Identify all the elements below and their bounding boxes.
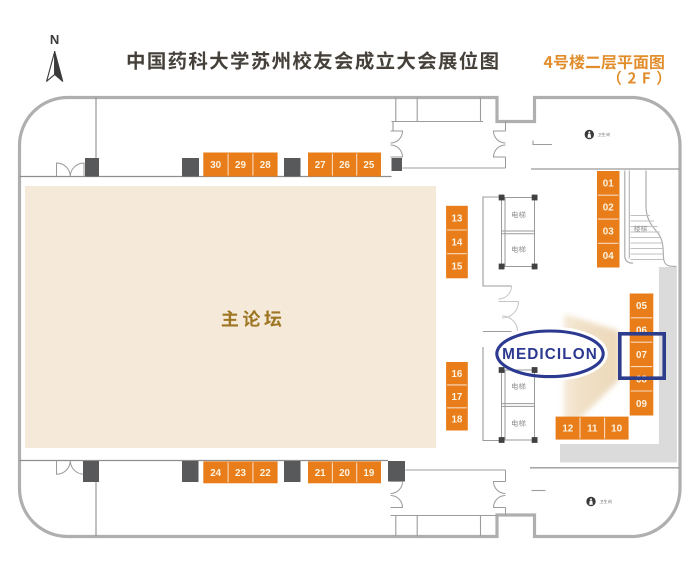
svg-text:16: 16 — [451, 369, 462, 380]
svg-text:01: 01 — [603, 179, 614, 190]
svg-text:28: 28 — [260, 160, 271, 171]
svg-text:05: 05 — [636, 301, 647, 312]
svg-text:02: 02 — [603, 203, 614, 214]
svg-text:07: 07 — [636, 350, 647, 361]
svg-text:24: 24 — [210, 468, 221, 479]
svg-text:03: 03 — [603, 227, 614, 238]
svg-text:15: 15 — [451, 262, 462, 273]
svg-text:30: 30 — [210, 160, 221, 171]
svg-text:20: 20 — [339, 468, 350, 479]
svg-text:13: 13 — [451, 213, 462, 224]
svg-text:18: 18 — [451, 415, 462, 426]
svg-text:21: 21 — [315, 468, 326, 479]
svg-text:14: 14 — [451, 237, 462, 248]
svg-text:22: 22 — [260, 468, 271, 479]
svg-text:10: 10 — [611, 424, 622, 435]
svg-text:MEDICILON: MEDICILON — [502, 346, 598, 363]
svg-text:23: 23 — [235, 468, 246, 479]
svg-text:12: 12 — [562, 424, 573, 435]
svg-text:17: 17 — [451, 392, 462, 403]
svg-text:29: 29 — [235, 160, 246, 171]
svg-text:04: 04 — [603, 251, 614, 262]
svg-text:N: N — [50, 32, 59, 47]
svg-text:25: 25 — [363, 160, 374, 171]
svg-text:26: 26 — [339, 160, 350, 171]
svg-text:11: 11 — [587, 424, 598, 435]
svg-text:19: 19 — [363, 468, 374, 479]
svg-text:09: 09 — [636, 399, 647, 410]
svg-text:27: 27 — [315, 160, 326, 171]
